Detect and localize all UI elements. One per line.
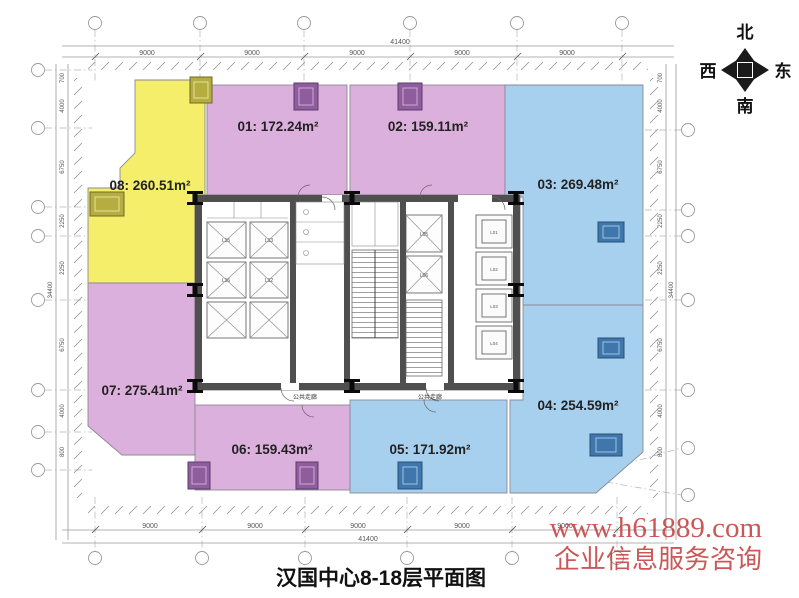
compass-cross-icon: [721, 48, 769, 92]
svg-text:4000: 4000: [658, 404, 664, 418]
svg-text:2250: 2250: [658, 214, 664, 228]
svg-text:L13: L13: [265, 238, 274, 244]
room-05-label: 05: 171.92m²: [389, 442, 471, 457]
svg-text:9000: 9000: [454, 50, 470, 57]
compass-north: 北: [737, 23, 754, 42]
room-01-label: 01: 172.24m²: [237, 119, 319, 134]
svg-text:L05: L05: [420, 232, 429, 238]
svg-text:6750: 6750: [60, 160, 66, 174]
svg-text:6750: 6750: [658, 160, 664, 174]
svg-text:L16: L16: [222, 278, 231, 284]
svg-text:L06: L06: [420, 273, 429, 279]
svg-text:9000: 9000: [559, 50, 575, 57]
floor-plan-canvas: 41400 9000 9000 9000 9000 9000 9000 9000…: [0, 0, 799, 598]
svg-text:9000: 9000: [350, 523, 366, 530]
svg-text:4000: 4000: [658, 99, 664, 113]
compass-south: 南: [737, 96, 754, 116]
room-03: [505, 85, 643, 305]
compass: 北 南 西 东: [700, 23, 792, 116]
corridor-label-right: 公共走廊: [418, 393, 442, 401]
overall-width-label-bottom: 41400: [358, 536, 378, 543]
svg-text:L03: L03: [490, 304, 498, 309]
room-08-label: 08: 260.51m²: [109, 178, 191, 193]
room-02-label: 02: 159.11m²: [388, 119, 469, 134]
svg-text:800: 800: [658, 446, 664, 457]
svg-text:4000: 4000: [60, 99, 66, 113]
svg-text:700: 700: [658, 72, 664, 83]
svg-text:700: 700: [60, 72, 66, 83]
svg-text:L12: L12: [265, 278, 274, 284]
floor-plan-screenshot: 41400 9000 9000 9000 9000 9000 9000 9000…: [0, 0, 799, 598]
svg-text:6750: 6750: [658, 338, 664, 352]
room-02: [350, 85, 505, 197]
watermark-url: www.h61889.com: [550, 512, 763, 544]
svg-text:9000: 9000: [454, 523, 470, 530]
overall-height-label-right: 34400: [669, 281, 675, 298]
core: L15 L13 L16 L12 L05 L06 L01 L02 L03 L04: [187, 185, 524, 417]
corridor-label-left: 公共走廊: [293, 393, 317, 401]
room-06-label: 06: 159.43m²: [231, 442, 313, 457]
compass-west: 西: [700, 62, 717, 81]
room-03-label: 03: 269.48m²: [537, 177, 619, 192]
svg-text:9000: 9000: [247, 523, 263, 530]
compass-east: 东: [775, 61, 792, 81]
svg-text:9000: 9000: [349, 50, 365, 57]
room-01: [207, 85, 347, 197]
svg-text:L15: L15: [222, 238, 231, 244]
room-07-label: 07: 275.41m²: [101, 383, 183, 398]
svg-text:2250: 2250: [60, 261, 66, 275]
overall-height-label: 34400: [48, 281, 54, 298]
svg-text:6750: 6750: [60, 338, 66, 352]
page-title: 汉国中心8-18层平面图: [276, 567, 486, 590]
svg-text:800: 800: [60, 446, 66, 457]
watermark-caption: 企业信息服务咨询: [554, 545, 762, 574]
svg-text:2250: 2250: [60, 214, 66, 228]
svg-text:2250: 2250: [658, 261, 664, 275]
svg-text:9000: 9000: [244, 50, 260, 57]
room-07: [88, 283, 195, 455]
overall-width-label: 41400: [390, 39, 410, 46]
watermark: www.h61889.com 企业信息服务咨询: [550, 512, 763, 574]
room-04-label: 04: 254.59m²: [537, 398, 619, 413]
svg-text:L02: L02: [490, 267, 498, 272]
svg-text:L01: L01: [490, 230, 498, 235]
svg-text:9000: 9000: [139, 50, 155, 57]
svg-text:4000: 4000: [60, 404, 66, 418]
svg-text:9000: 9000: [142, 523, 158, 530]
svg-text:L04: L04: [490, 341, 498, 346]
